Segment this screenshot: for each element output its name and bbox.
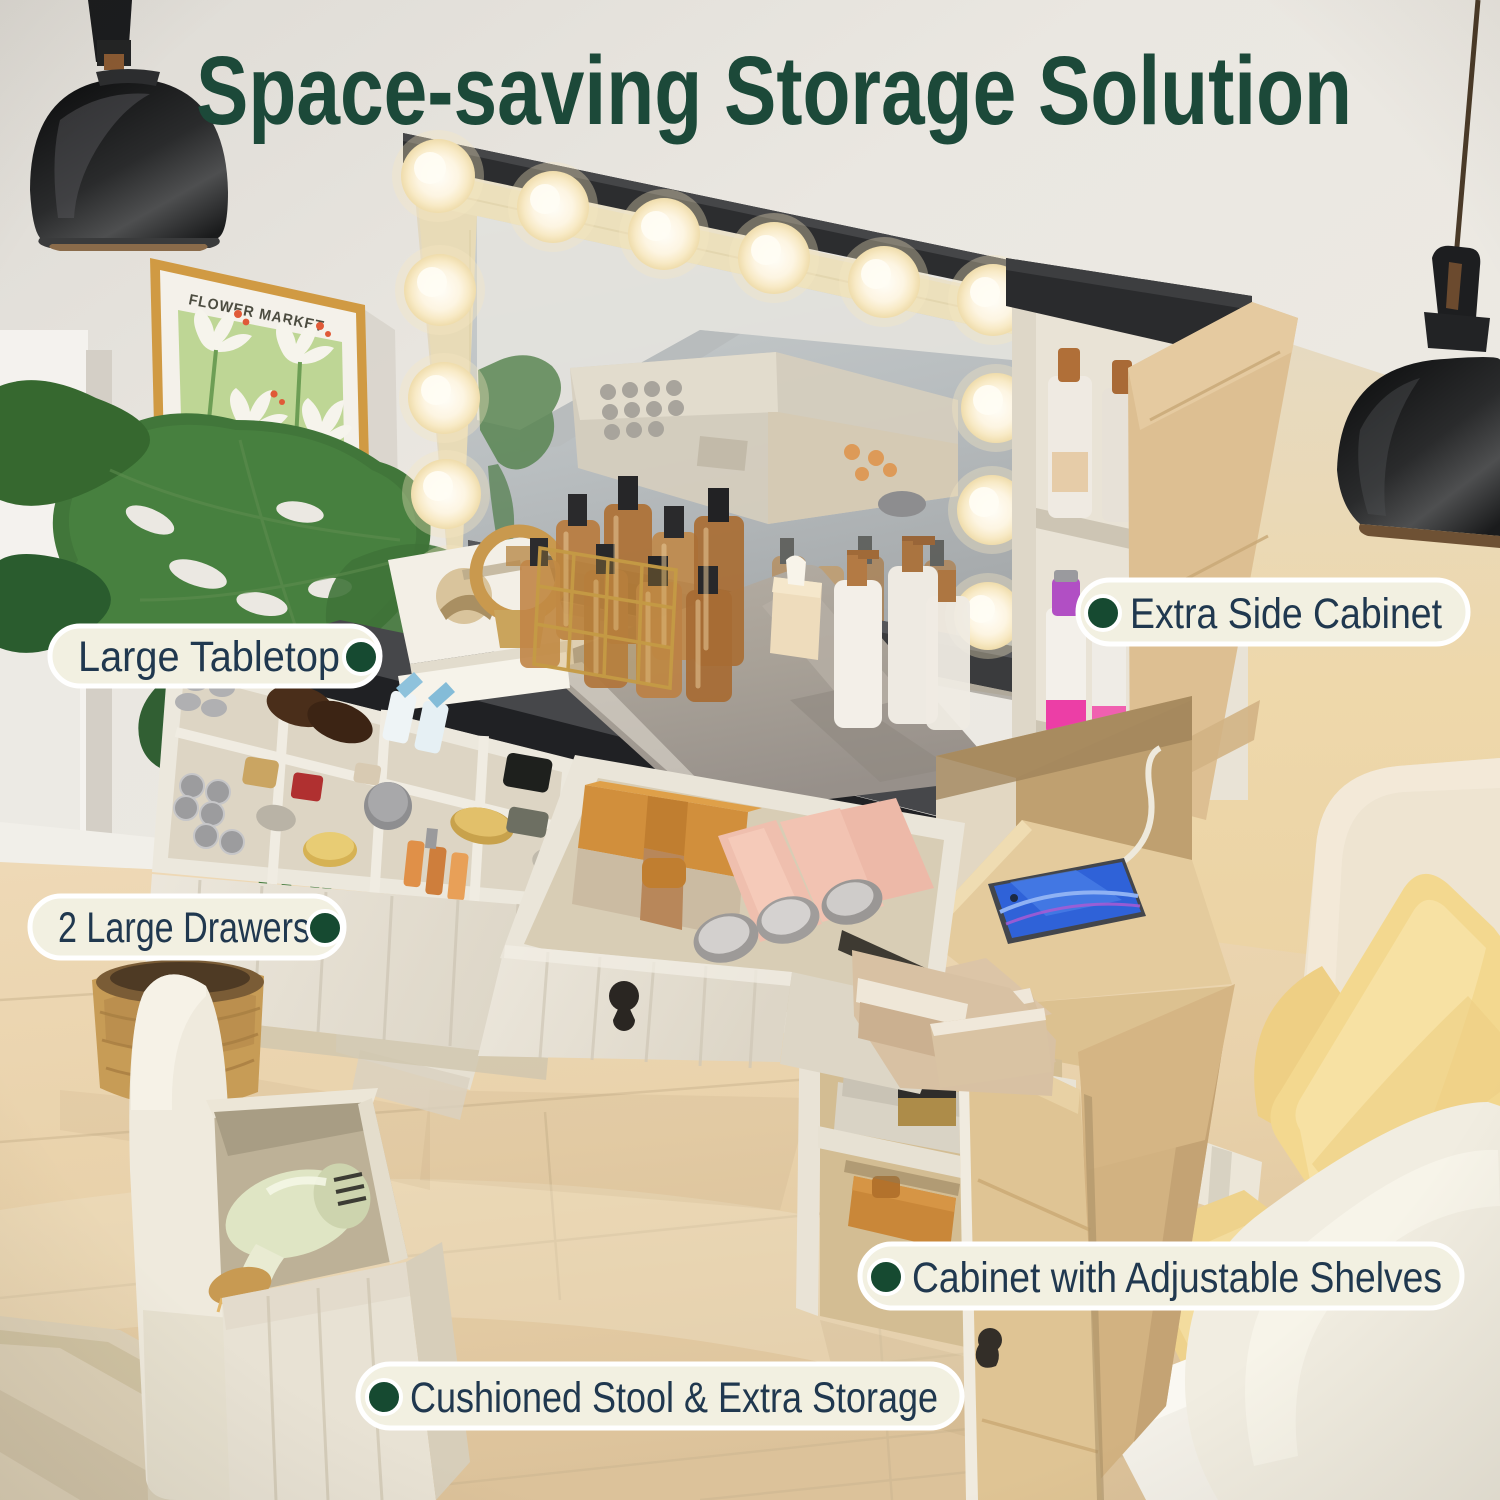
svg-text:Large Tabletop: Large Tabletop	[78, 633, 340, 681]
svg-text:Cabinet with Adjustable Shelve: Cabinet with Adjustable Shelves	[912, 1254, 1442, 1302]
svg-text:2 Large Drawers: 2 Large Drawers	[58, 904, 310, 952]
svg-text:Space-saving Storage Solution: Space-saving Storage Solution	[196, 36, 1352, 145]
svg-text:Cushioned Stool & Extra Storag: Cushioned Stool & Extra Storage	[410, 1374, 938, 1422]
svg-text:Extra Side Cabinet: Extra Side Cabinet	[1130, 590, 1442, 638]
